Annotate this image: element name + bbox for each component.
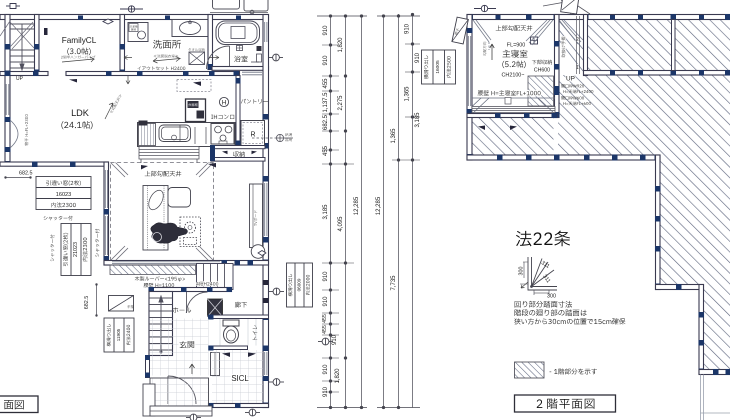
svg-text:06009: 06009 — [297, 278, 302, 291]
svg-text:CH600: CH600 — [534, 68, 550, 74]
svg-text:2,275: 2,275 — [338, 95, 344, 111]
svg-text:910: 910 — [323, 55, 329, 66]
svg-text:455: 455 — [323, 145, 329, 156]
svg-text:3,185: 3,185 — [323, 204, 329, 220]
svg-text:1,820: 1,820 — [335, 368, 341, 384]
svg-text:16023: 16023 — [56, 192, 72, 198]
svg-text:11905: 11905 — [116, 328, 121, 341]
svg-text:910: 910 — [323, 386, 329, 397]
svg-text:CH2100~: CH2100~ — [502, 73, 525, 79]
svg-text:682.5: 682.5 — [84, 296, 90, 310]
svg-text:300: 300 — [547, 294, 556, 300]
svg-text:455: 455 — [322, 325, 328, 334]
svg-text:UP: UP — [566, 76, 575, 83]
svg-text:SICL: SICL — [231, 374, 249, 383]
svg-text:1,365: 1,365 — [391, 128, 397, 144]
svg-text:H: H — [222, 100, 227, 107]
svg-text:FL=900: FL=900 — [507, 43, 525, 49]
svg-text:1,137.5: 1,137.5 — [323, 92, 329, 113]
svg-text:3,185: 3,185 — [415, 112, 421, 128]
svg-text:455: 455 — [323, 78, 329, 89]
svg-text:910: 910 — [323, 25, 329, 36]
svg-text:682.5: 682.5 — [19, 171, 33, 177]
svg-text:300: 300 — [519, 267, 525, 276]
svg-text:1,365: 1,365 — [405, 86, 411, 102]
svg-text:12,285: 12,285 — [354, 196, 360, 215]
svg-text:UP: UP — [16, 76, 24, 82]
svg-text:4,095: 4,095 — [338, 216, 344, 232]
svg-text:12,285: 12,285 — [376, 196, 382, 215]
svg-text:FamilyCL: FamilyCL — [62, 36, 97, 45]
svg-text:21023: 21023 — [73, 242, 79, 257]
svg-text:910: 910 — [332, 334, 338, 345]
svg-text:7,735: 7,735 — [391, 275, 397, 291]
svg-text:910: 910 — [323, 364, 329, 375]
svg-text:910: 910 — [415, 52, 421, 63]
svg-text:455: 455 — [322, 314, 328, 323]
svg-text:910: 910 — [405, 23, 411, 34]
svg-text:1,820: 1,820 — [338, 37, 344, 53]
svg-text:910: 910 — [323, 296, 329, 307]
svg-text:910: 910 — [323, 271, 329, 282]
svg-text:682.5: 682.5 — [323, 114, 329, 130]
svg-text:16005: 16005 — [435, 60, 441, 74]
svg-text:R: R — [250, 132, 255, 139]
svg-text:LDK: LDK — [71, 108, 90, 118]
